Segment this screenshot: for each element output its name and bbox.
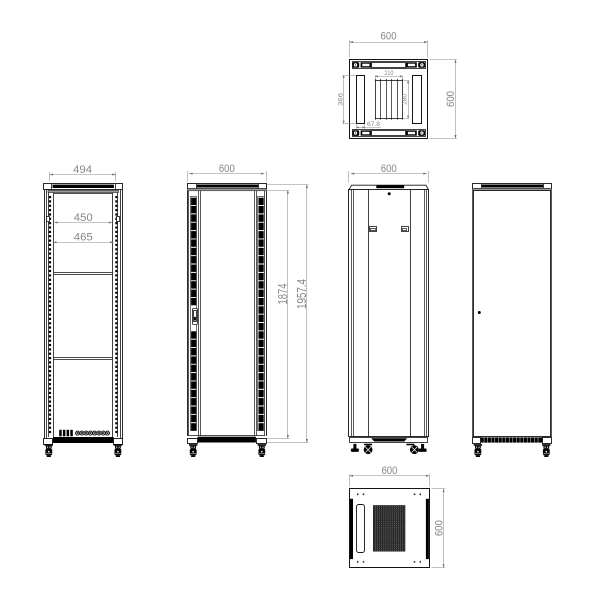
svg-text:600: 600 bbox=[381, 31, 397, 43]
svg-text:366: 366 bbox=[337, 92, 344, 106]
svg-text:450: 450 bbox=[74, 212, 93, 224]
svg-text:600: 600 bbox=[381, 163, 397, 175]
svg-text:210: 210 bbox=[384, 70, 393, 77]
svg-text:465: 465 bbox=[74, 232, 93, 244]
svg-text:600: 600 bbox=[433, 520, 445, 536]
svg-text:494: 494 bbox=[73, 164, 92, 176]
svg-text:600: 600 bbox=[445, 91, 457, 107]
svg-text:600: 600 bbox=[219, 163, 235, 175]
svg-text:1874: 1874 bbox=[276, 283, 290, 304]
svg-text:600: 600 bbox=[381, 465, 397, 477]
svg-text:280: 280 bbox=[402, 93, 409, 105]
svg-text:67.8: 67.8 bbox=[367, 121, 381, 128]
svg-text:1957.4: 1957.4 bbox=[295, 279, 309, 309]
